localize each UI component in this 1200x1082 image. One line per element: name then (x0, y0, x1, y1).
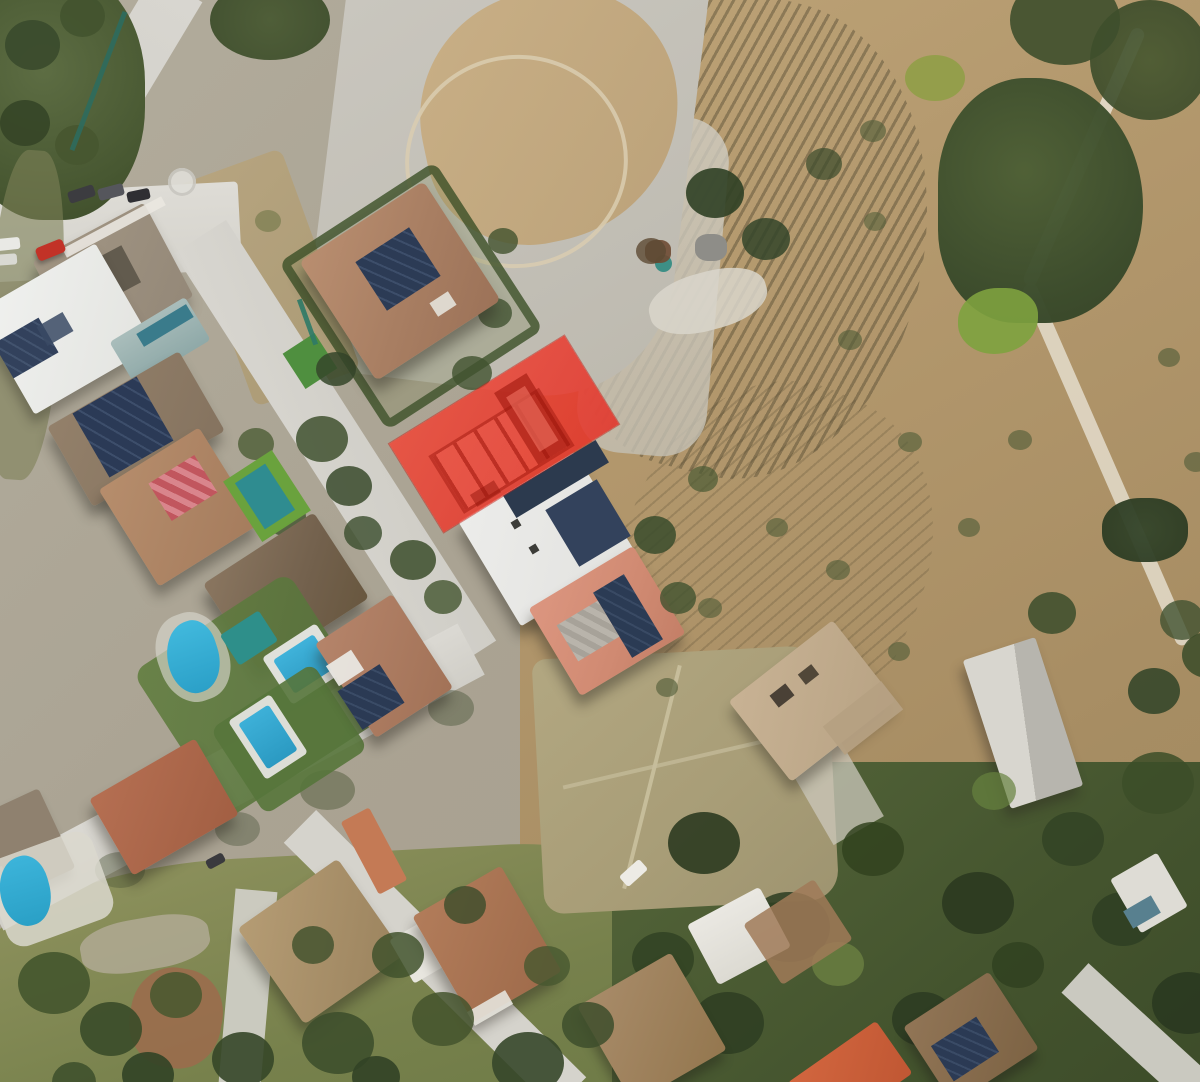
tree (80, 1002, 142, 1056)
tree (296, 416, 348, 462)
bright-shrubs (972, 772, 1016, 810)
tree (634, 516, 676, 554)
bush (766, 518, 788, 537)
tree (444, 886, 486, 924)
bush (864, 212, 886, 231)
tree (524, 946, 570, 986)
tree (668, 812, 740, 874)
tree (688, 466, 718, 492)
tree (562, 1002, 614, 1048)
shrub-brown (636, 238, 666, 264)
tree (686, 168, 744, 218)
tree (488, 228, 518, 254)
tree (742, 218, 790, 260)
tree (1122, 752, 1194, 814)
bush (698, 598, 722, 618)
tree (316, 352, 356, 386)
tree (942, 872, 1014, 934)
tree (424, 580, 462, 614)
satellite-map-image (0, 0, 1200, 1082)
bush (888, 642, 910, 661)
tree (344, 516, 382, 550)
tree (0, 100, 50, 146)
bush (898, 432, 922, 452)
rock-gray (695, 234, 727, 261)
round-feature (168, 168, 196, 196)
tree (1128, 668, 1180, 714)
tree (1028, 592, 1076, 634)
car (0, 253, 17, 265)
tree (326, 466, 372, 506)
bright-shrubs (905, 55, 965, 101)
tree (292, 926, 334, 964)
tree (992, 942, 1044, 988)
bush (826, 560, 850, 580)
tree (412, 992, 474, 1046)
tree (150, 972, 202, 1018)
bush (255, 210, 281, 232)
bush (860, 120, 886, 142)
tree (1102, 498, 1188, 562)
tree (18, 952, 90, 1014)
bush (958, 518, 980, 537)
tree (1042, 812, 1104, 866)
tree (5, 20, 60, 70)
tree (660, 582, 696, 614)
bush (1158, 348, 1180, 367)
bush (838, 330, 862, 350)
tree (390, 540, 436, 580)
tree (806, 148, 842, 180)
tree (842, 822, 904, 876)
tree (1160, 600, 1200, 640)
tree (372, 932, 424, 978)
bush (1008, 430, 1032, 450)
bush (656, 678, 678, 697)
tree (212, 1032, 274, 1082)
